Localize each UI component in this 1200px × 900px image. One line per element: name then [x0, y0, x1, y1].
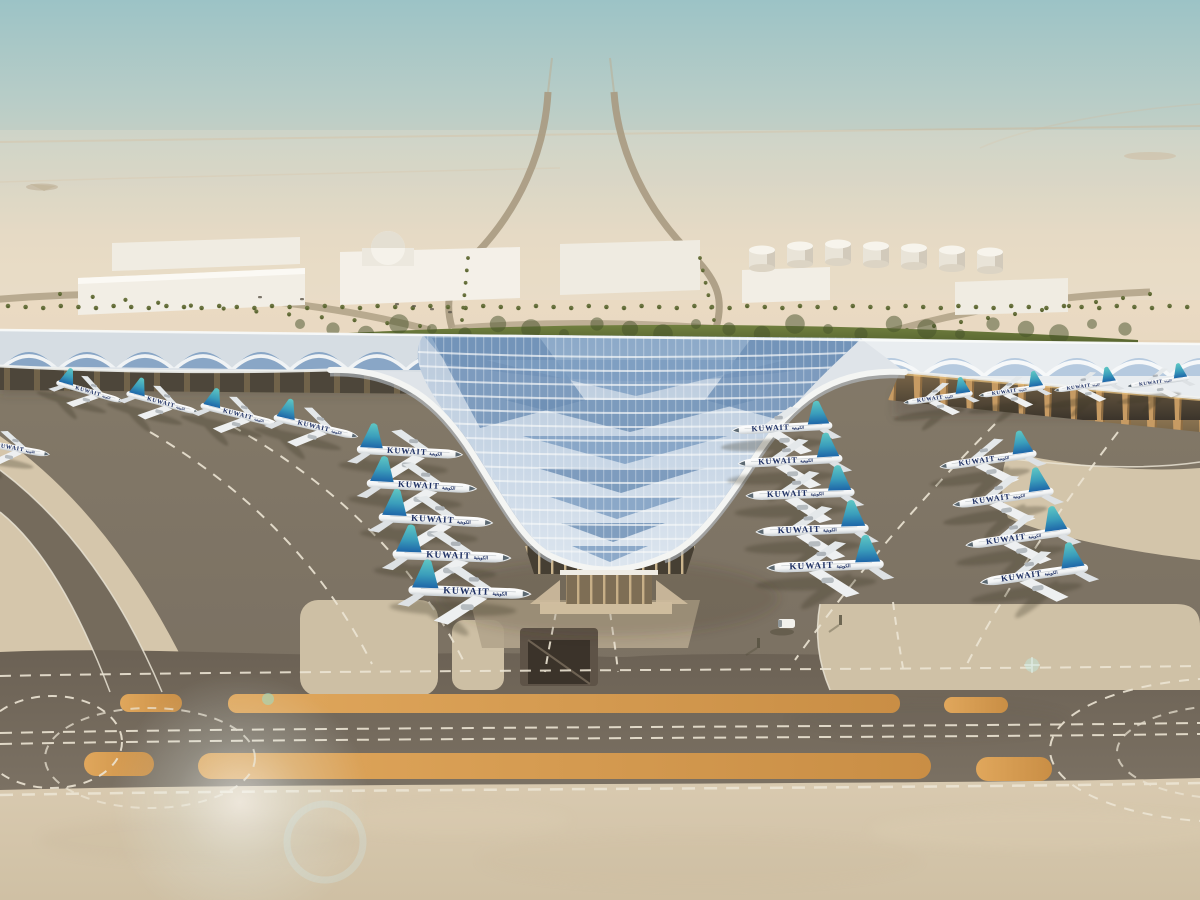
engine-near [796, 505, 808, 510]
engine-far [792, 481, 801, 485]
engine-far [435, 506, 445, 511]
fuel-tank [749, 246, 775, 273]
engine-far [421, 473, 431, 477]
airport-aerial-render: KUWAITالكويتيةKUWAITالكويتيةKUWAITالكويت… [0, 0, 1200, 900]
engine-near [461, 604, 474, 610]
engine-far [451, 541, 461, 546]
engine-far [803, 516, 813, 520]
engine-far [816, 552, 826, 557]
roof-wing-left [0, 330, 430, 372]
fuel-tank [787, 242, 813, 269]
fuel-tank [977, 248, 1003, 275]
fuel-tank [863, 242, 889, 269]
engine-far [782, 448, 791, 452]
engine-near [821, 577, 834, 583]
engine-far [774, 416, 783, 420]
fuel-tank [939, 246, 965, 273]
fuel-tank [901, 244, 927, 271]
engine-near [808, 541, 820, 547]
engine-near [779, 438, 790, 443]
fuel-tank [825, 240, 851, 267]
engine-far [469, 577, 480, 582]
airport-render-svg: KUWAITالكويتيةKUWAITالكويتيةKUWAITالكويت… [0, 0, 1200, 900]
underpass-pit [520, 628, 598, 686]
engine-far [409, 439, 418, 443]
engine-near [787, 471, 798, 476]
